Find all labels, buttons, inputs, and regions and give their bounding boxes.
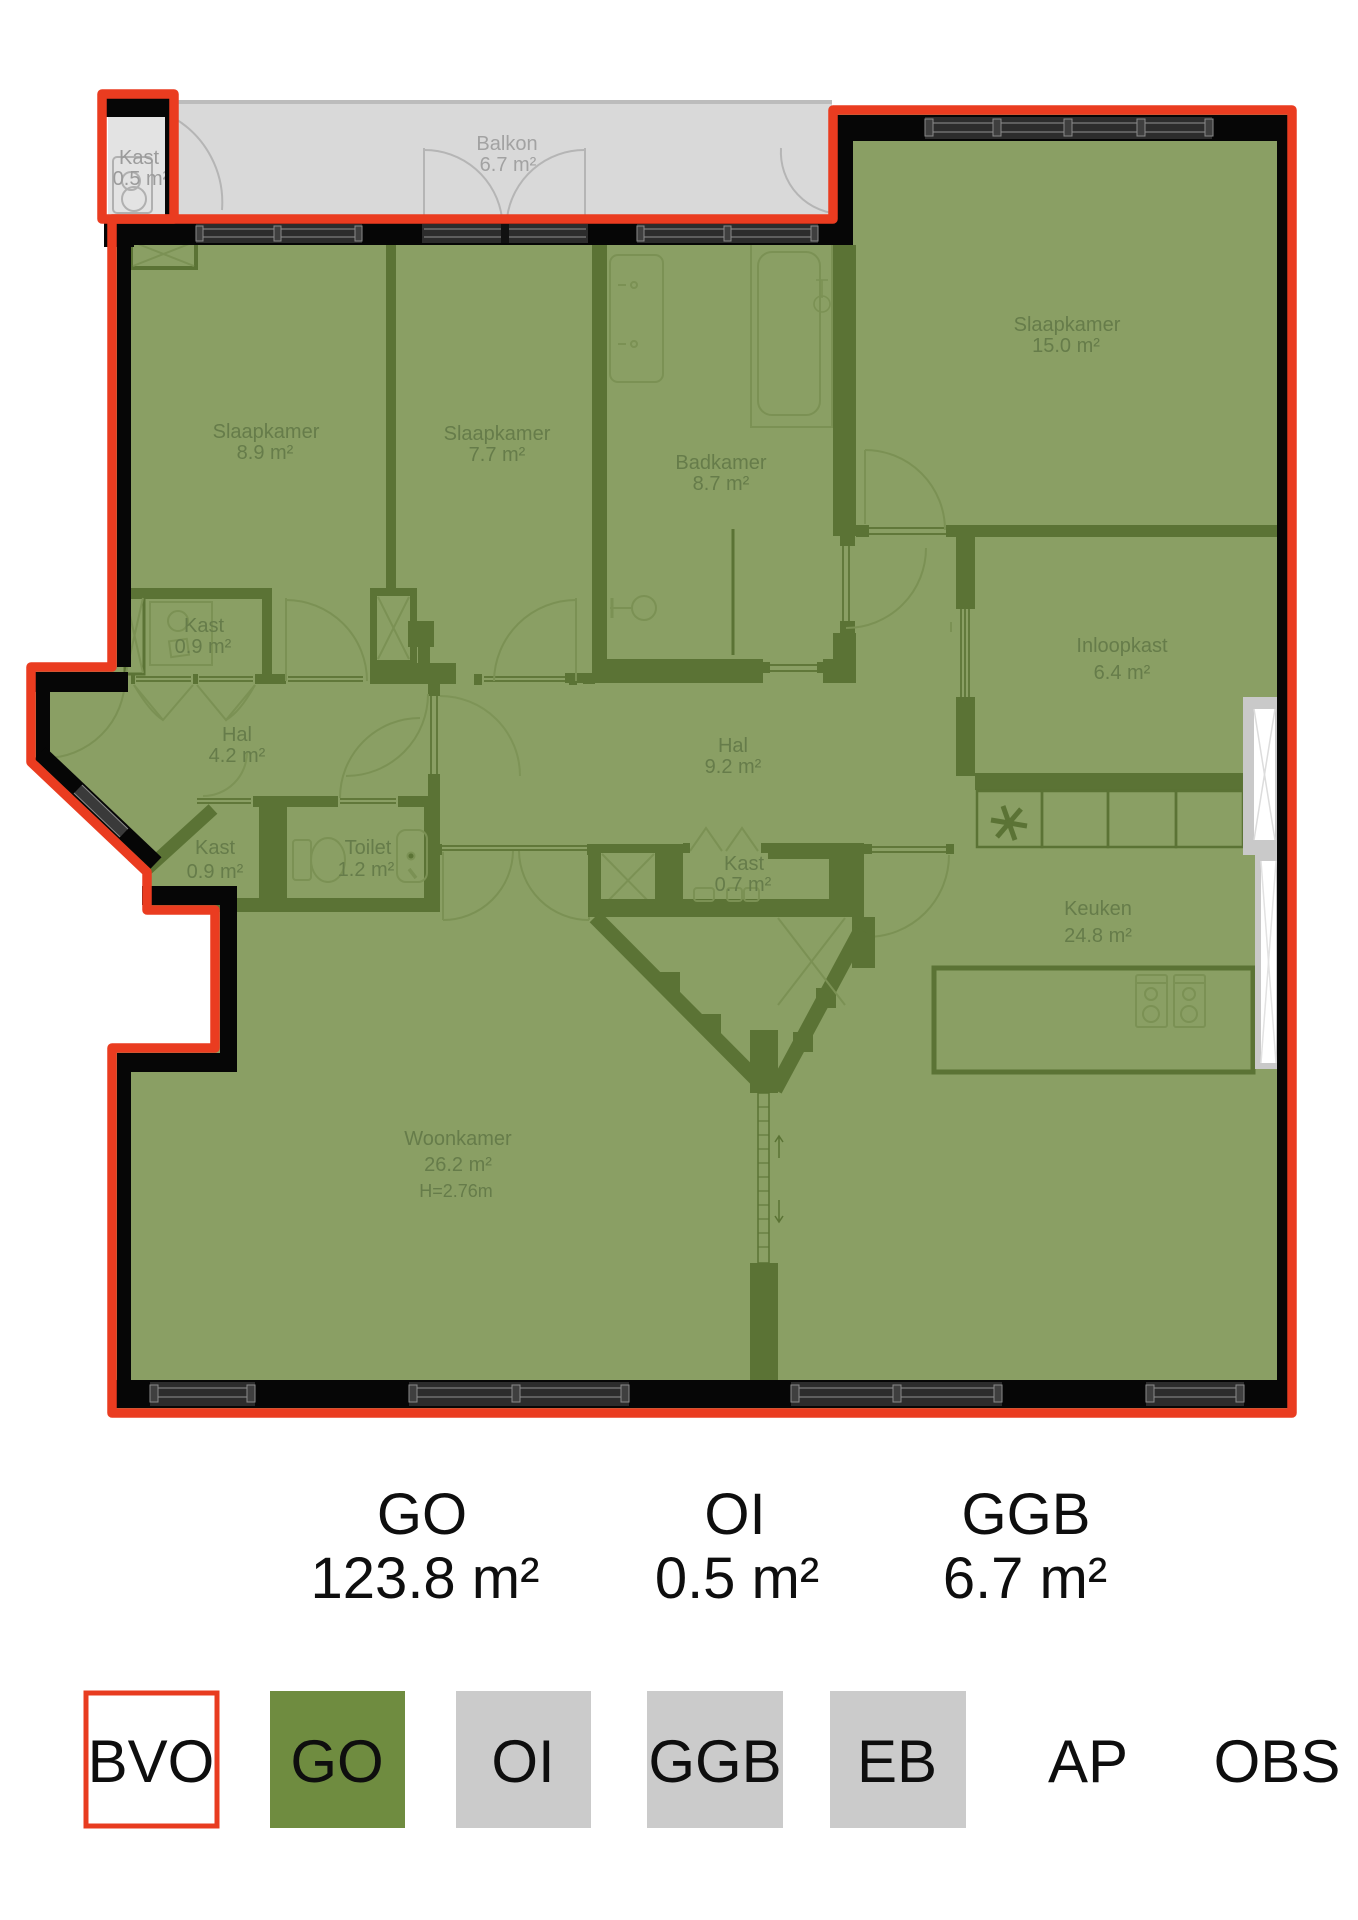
svg-text:Slaapkamer: Slaapkamer — [444, 423, 551, 445]
svg-text:BVO: BVO — [88, 1728, 215, 1795]
svg-text:15.0 m²: 15.0 m² — [1032, 335, 1100, 357]
svg-text:Kast: Kast — [184, 615, 224, 637]
svg-text:123.8 m²: 123.8 m² — [311, 1546, 540, 1611]
svg-text:OI: OI — [704, 1482, 765, 1547]
svg-text:Balkon: Balkon — [476, 133, 537, 155]
svg-text:Inloopkast: Inloopkast — [1076, 635, 1168, 657]
svg-text:0.9 m²: 0.9 m² — [175, 636, 232, 658]
svg-text:Keuken: Keuken — [1064, 898, 1132, 920]
svg-text:Kast: Kast — [724, 853, 764, 875]
svg-text:Hal: Hal — [222, 724, 252, 746]
svg-text:7.7 m²: 7.7 m² — [469, 444, 526, 466]
svg-text:GGB: GGB — [648, 1728, 781, 1795]
svg-text:GO: GO — [377, 1482, 467, 1547]
svg-text:1.2 m²: 1.2 m² — [338, 859, 395, 881]
svg-text:Slaapkamer: Slaapkamer — [213, 421, 320, 443]
svg-text:9.2 m²: 9.2 m² — [705, 756, 762, 778]
svg-text:Toilet: Toilet — [345, 837, 392, 859]
svg-text:GGB: GGB — [962, 1482, 1091, 1547]
svg-text:6.7 m²: 6.7 m² — [480, 154, 537, 176]
svg-text:4.2 m²: 4.2 m² — [209, 745, 266, 767]
svg-text:Kast: Kast — [119, 147, 159, 169]
svg-text:Badkamer: Badkamer — [675, 452, 766, 474]
svg-text:6.7 m²: 6.7 m² — [943, 1546, 1107, 1611]
svg-text:Kast: Kast — [195, 837, 235, 859]
svg-text:OI: OI — [491, 1728, 554, 1795]
svg-text:6.4 m²: 6.4 m² — [1094, 662, 1151, 684]
svg-text:0.5 m²: 0.5 m² — [113, 168, 170, 190]
svg-text:0.7 m²: 0.7 m² — [715, 874, 772, 896]
svg-text:Woonkamer: Woonkamer — [404, 1128, 512, 1150]
svg-text:AP: AP — [1048, 1728, 1128, 1795]
svg-text:0.9 m²: 0.9 m² — [187, 861, 244, 883]
svg-text:26.2 m²: 26.2 m² — [424, 1154, 492, 1176]
svg-text:Slaapkamer: Slaapkamer — [1014, 314, 1121, 336]
svg-text:OBS: OBS — [1214, 1728, 1341, 1795]
svg-text:H=2.76m: H=2.76m — [419, 1181, 493, 1201]
svg-text:0.5 m²: 0.5 m² — [655, 1546, 819, 1611]
svg-text:8.9 m²: 8.9 m² — [237, 442, 294, 464]
svg-text:24.8 m²: 24.8 m² — [1064, 925, 1132, 947]
svg-text:EB: EB — [857, 1728, 937, 1795]
svg-text:GO: GO — [290, 1728, 383, 1795]
svg-text:8.7 m²: 8.7 m² — [693, 473, 750, 495]
svg-text:Hal: Hal — [718, 735, 748, 757]
